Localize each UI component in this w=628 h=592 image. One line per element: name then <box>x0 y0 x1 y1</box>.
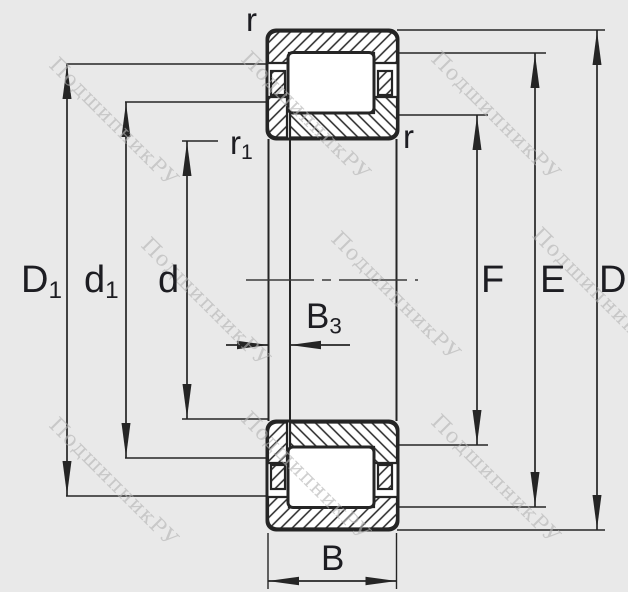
label-D1: D1 <box>21 261 62 303</box>
watermark-text: ПодшипникРУ <box>136 233 275 372</box>
cage-right <box>378 465 392 489</box>
label-d: d <box>158 261 179 299</box>
label-d1: d1 <box>84 261 119 303</box>
label-B3: B3 <box>306 299 342 338</box>
label-B: B <box>321 541 344 576</box>
cage-right <box>378 71 392 95</box>
watermark-text: ПодшипникРУ <box>426 410 565 549</box>
watermark-text: ПодшипникРУ <box>426 47 565 186</box>
label-F: F <box>481 261 504 299</box>
label-r-right: r <box>403 120 414 153</box>
label-r-top: r <box>246 3 257 36</box>
watermark-text: ПодшипникРУ <box>44 53 183 192</box>
label-r1: r1 <box>230 126 253 163</box>
bearing-dimension-diagram: ПодшипникРУ ПодшипникРУ ПодшипникРУ Подш… <box>0 0 628 592</box>
label-E: E <box>540 261 565 299</box>
label-D: D <box>599 261 626 299</box>
